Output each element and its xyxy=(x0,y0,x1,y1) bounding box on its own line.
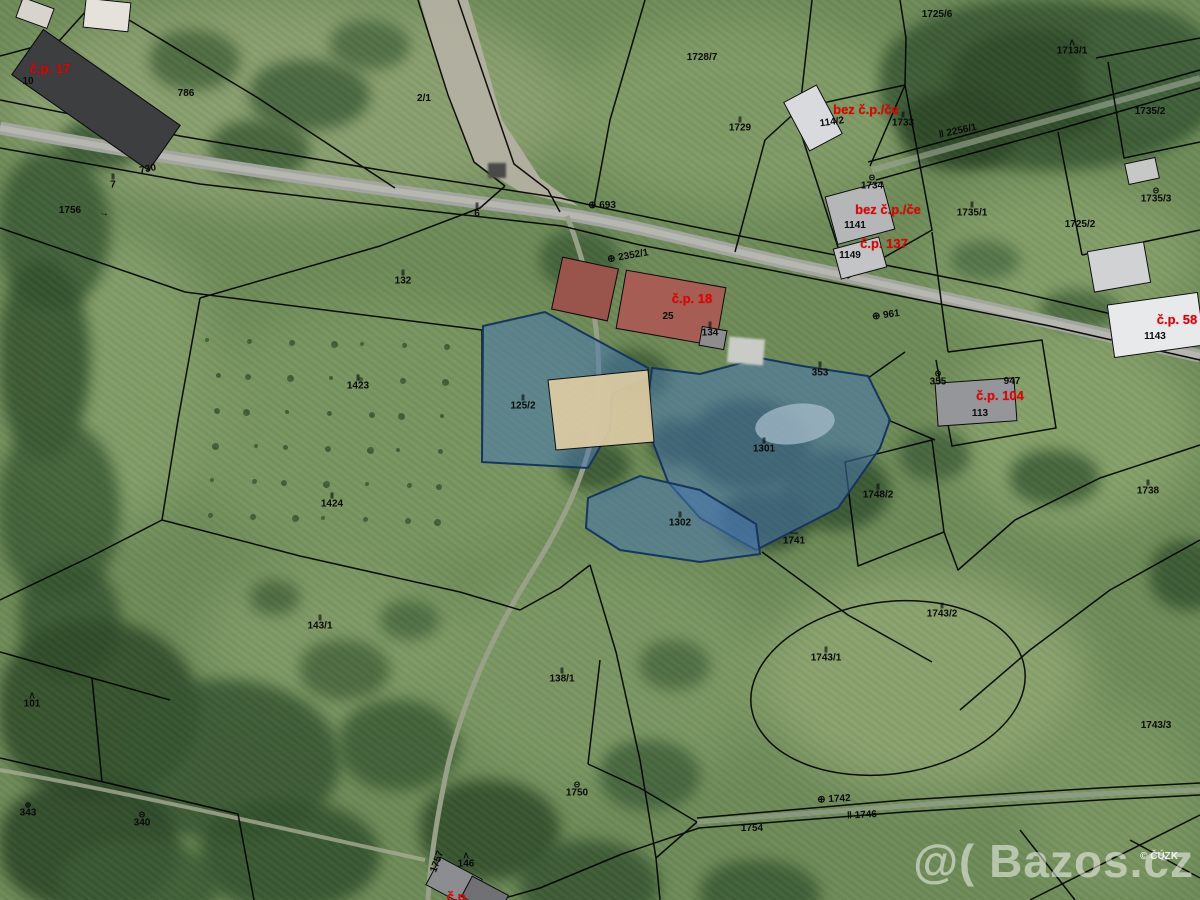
parcel-number-label: ‖1423 xyxy=(347,376,369,393)
cadastral-map-image: 10730‖71756→7862/1‖6⊕ 2352/1⊕ 693‖132‖14… xyxy=(0,0,1200,900)
building-number-label: č.p. 58 xyxy=(1157,313,1197,327)
parcel-number-label: 1754 xyxy=(741,824,763,835)
parcel-number-label: ‖353 xyxy=(812,363,829,380)
building xyxy=(83,0,132,32)
parcel-number-label: 1149 xyxy=(839,251,861,262)
parcel-number-label: ‖132 xyxy=(395,271,412,288)
parcel-number-label: ⊕343 xyxy=(20,803,37,820)
parcel-number-label: 113 xyxy=(972,409,988,420)
main-road xyxy=(0,128,1200,356)
parcel-number-label: ‖143/1 xyxy=(307,616,332,633)
parcel-number-label: ‖125/2 xyxy=(510,396,535,413)
building xyxy=(727,336,765,365)
parcel-number-label: ‖1302 xyxy=(669,513,691,530)
parcel-number-label: ‖1729 xyxy=(729,118,751,135)
parcel-number-label: ‖6 xyxy=(474,204,480,221)
parcel-number-label: Λ146 xyxy=(458,854,475,871)
parcel-number-label: 1735/2 xyxy=(1135,107,1166,118)
parcel-number-label: 786 xyxy=(178,89,195,100)
parcel-number-label: ⊕ 693 xyxy=(588,201,616,212)
parcel-number-label: 947 xyxy=(1004,377,1021,388)
cadastral-boundaries xyxy=(0,0,1200,900)
road-network xyxy=(0,0,1200,900)
parcel-number-label: 1756 xyxy=(59,206,81,217)
parcel-number-label: Λ101 xyxy=(24,694,41,711)
parcel-number-label: 10 xyxy=(22,77,33,88)
bazos-watermark: @( Bazos.cz xyxy=(913,834,1194,888)
parcel-number-label: Θ355 xyxy=(930,372,947,389)
building-number-label: bez č.p./če xyxy=(855,203,921,217)
sand-area xyxy=(548,370,654,450)
parcel-number-label: ‖ 1746 xyxy=(847,810,878,822)
parcel-number-label: Θ1750 xyxy=(566,783,588,800)
parcel-number-label: ‖134 xyxy=(702,323,719,340)
building-number-label: č.p. 137 xyxy=(860,237,908,251)
parcel-number-label: ⊕ 1742 xyxy=(817,794,851,806)
parcel-number-label: 1725/2 xyxy=(1065,220,1096,231)
parcel-number-label: 1141 xyxy=(844,221,866,232)
parcel-number-label: ‖1748/2 xyxy=(863,485,894,502)
parcel-number-label: 1743/3 xyxy=(1141,721,1172,732)
map-overlay xyxy=(0,0,1200,900)
building-number-label: bez č.p./če xyxy=(833,103,899,117)
parcel-number-label: Λ1713/1 xyxy=(1057,41,1088,58)
parcel-number-label: ‖1743/1 xyxy=(811,648,842,665)
field-track xyxy=(0,770,425,860)
building-number-label: č.p. 18 xyxy=(672,292,712,306)
parcel-number-label: Θ1734 xyxy=(861,176,883,193)
parcel-number-label: ‖7 xyxy=(110,175,116,192)
parcel-number-label: ‖1743/2 xyxy=(927,604,958,621)
parcel-number-label: 1725/6 xyxy=(922,10,953,21)
parcel-number-label: → xyxy=(98,208,109,219)
parcel-number-label: —1741 xyxy=(783,531,805,548)
parcel-number-label: ‖1301 xyxy=(753,439,775,456)
building-number-label: č.p. xyxy=(447,890,469,900)
parcel-number-label: Θ340 xyxy=(134,813,151,830)
parcel-number-label: Θ1735/3 xyxy=(1141,189,1172,206)
lane-2256 xyxy=(872,78,1200,170)
parcel-number-label: ‖1738 xyxy=(1137,481,1159,498)
parcel-number-label: 2/1 xyxy=(417,94,431,105)
building-number-label: č.p. 104 xyxy=(976,389,1024,403)
lane-1746 xyxy=(697,790,1200,822)
parcel-number-label: 1143 xyxy=(1144,332,1166,343)
building xyxy=(551,257,619,322)
parcel-number-label: ‖138/1 xyxy=(549,669,574,686)
parcel-number-label: 1728/7 xyxy=(687,53,718,64)
parcel-number-label: ‖1735/1 xyxy=(957,203,988,220)
parcel-number-label: 25 xyxy=(662,312,673,323)
parcel-number-label: ‖1424 xyxy=(321,494,343,511)
building xyxy=(488,163,506,178)
building-number-label: č.p. 17 xyxy=(30,62,70,76)
